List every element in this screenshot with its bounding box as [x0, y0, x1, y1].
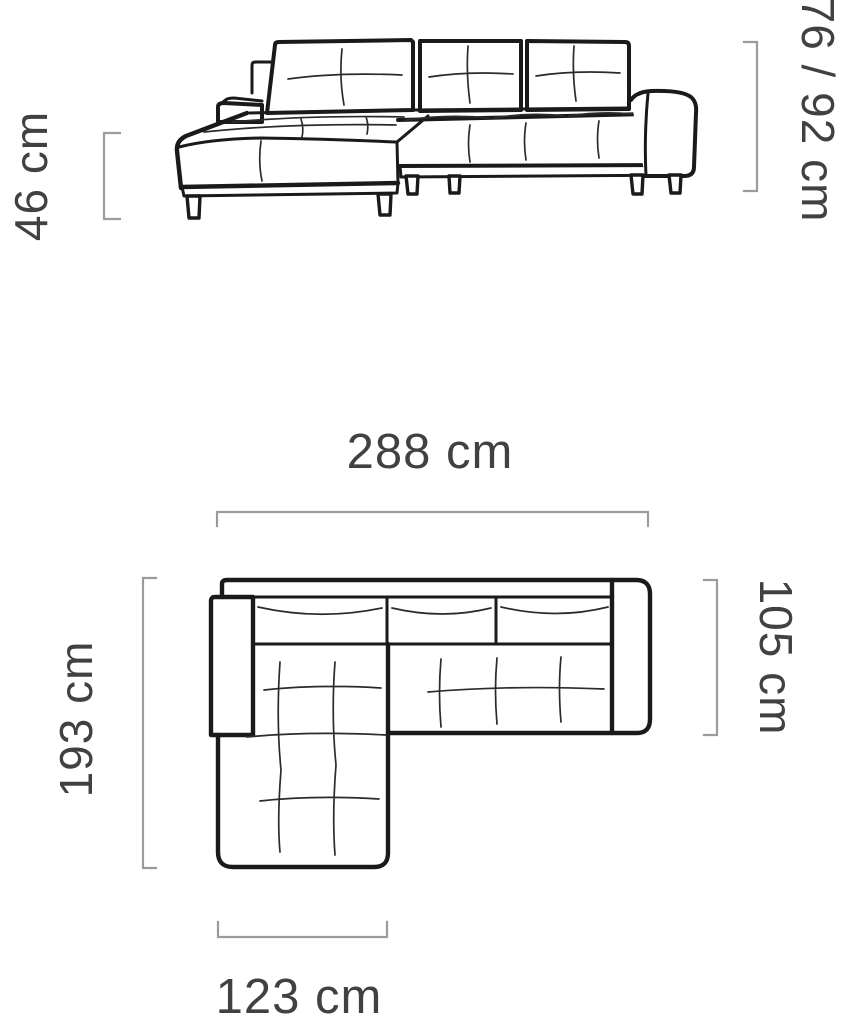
front-chaise-silhouette: [177, 113, 247, 188]
back-height-label: 76 / 92 cm: [792, 0, 844, 222]
front-chaise-front-rim: [179, 138, 396, 147]
seat-height-label: 46 cm: [5, 111, 57, 241]
plan-chaise-tuft-grid: [247, 662, 386, 855]
plan-left-armrest: [211, 597, 253, 735]
chaise-width-bracket: [218, 922, 387, 937]
body-depth-label: 105 cm: [750, 579, 802, 736]
plan-chaise-outline: [218, 644, 388, 867]
total-width-bracket: [217, 512, 648, 526]
plan-back-frame: [222, 580, 612, 597]
front-seat-band-tufts: [469, 121, 600, 162]
chaise-width-label: 123 cm: [216, 970, 383, 1020]
plan-backrest-dividers: [387, 597, 496, 644]
sofa-dimension-diagram: 46 cm 76 / 92 cm 288 cm 193 cm 105 cm 12…: [0, 0, 845, 1020]
seat-height-bracket: [104, 133, 120, 219]
sofa-plan-view-drawing: [211, 580, 650, 867]
sofa-front-view-drawing: [177, 40, 696, 218]
front-backrest-panel-1: [267, 40, 413, 113]
back-height-bracket: [744, 42, 757, 191]
total-width-label: 288 cm: [347, 425, 514, 479]
plan-seat-tuft-grid: [428, 657, 604, 727]
front-chaise-bottom-edge: [181, 183, 398, 187]
front-chaise-tuft-lines: [204, 117, 404, 181]
total-depth-bracket: [143, 578, 156, 868]
plan-backrest-cushion-curves: [258, 607, 608, 614]
front-legs: [187, 175, 681, 218]
total-depth-label: 193 cm: [50, 641, 102, 798]
body-depth-bracket: [704, 580, 717, 735]
diagram-svg: 46 cm 76 / 92 cm 288 cm 193 cm 105 cm 12…: [0, 0, 845, 1020]
plan-right-armrest: [612, 580, 650, 733]
dimension-labels: 46 cm 76 / 92 cm 288 cm 193 cm 105 cm 12…: [5, 0, 844, 1020]
